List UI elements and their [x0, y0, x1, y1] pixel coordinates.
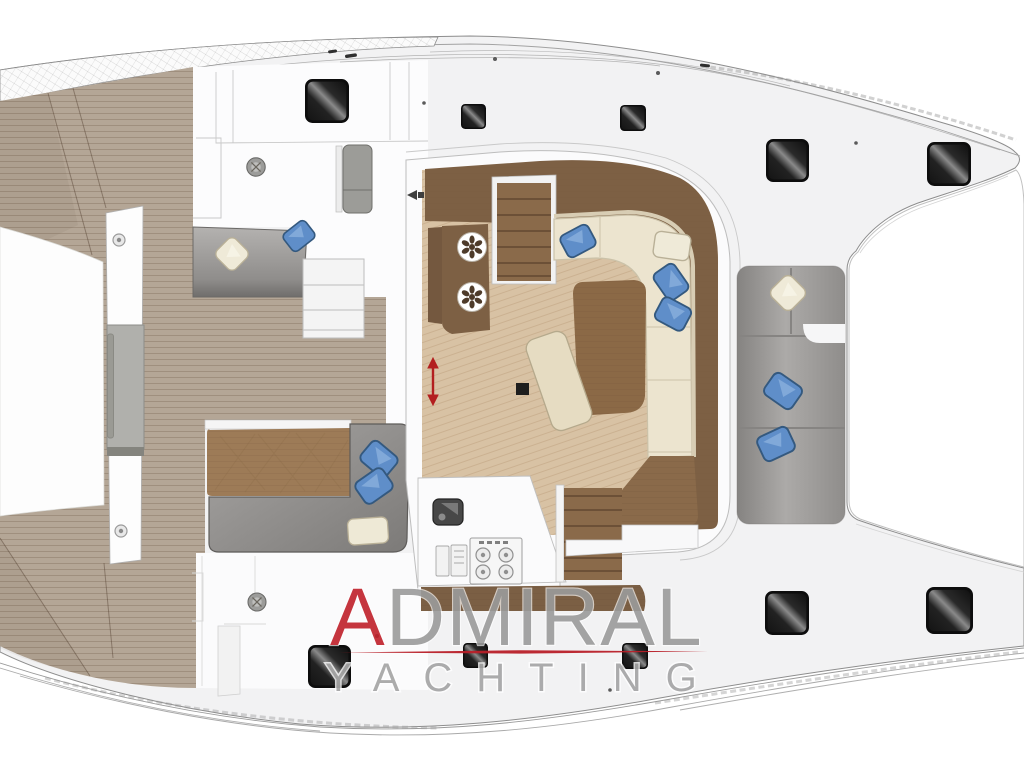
svg-text:ADMIRAL: ADMIRAL [330, 572, 703, 663]
svg-text:YACHTING: YACHTING [325, 656, 721, 700]
